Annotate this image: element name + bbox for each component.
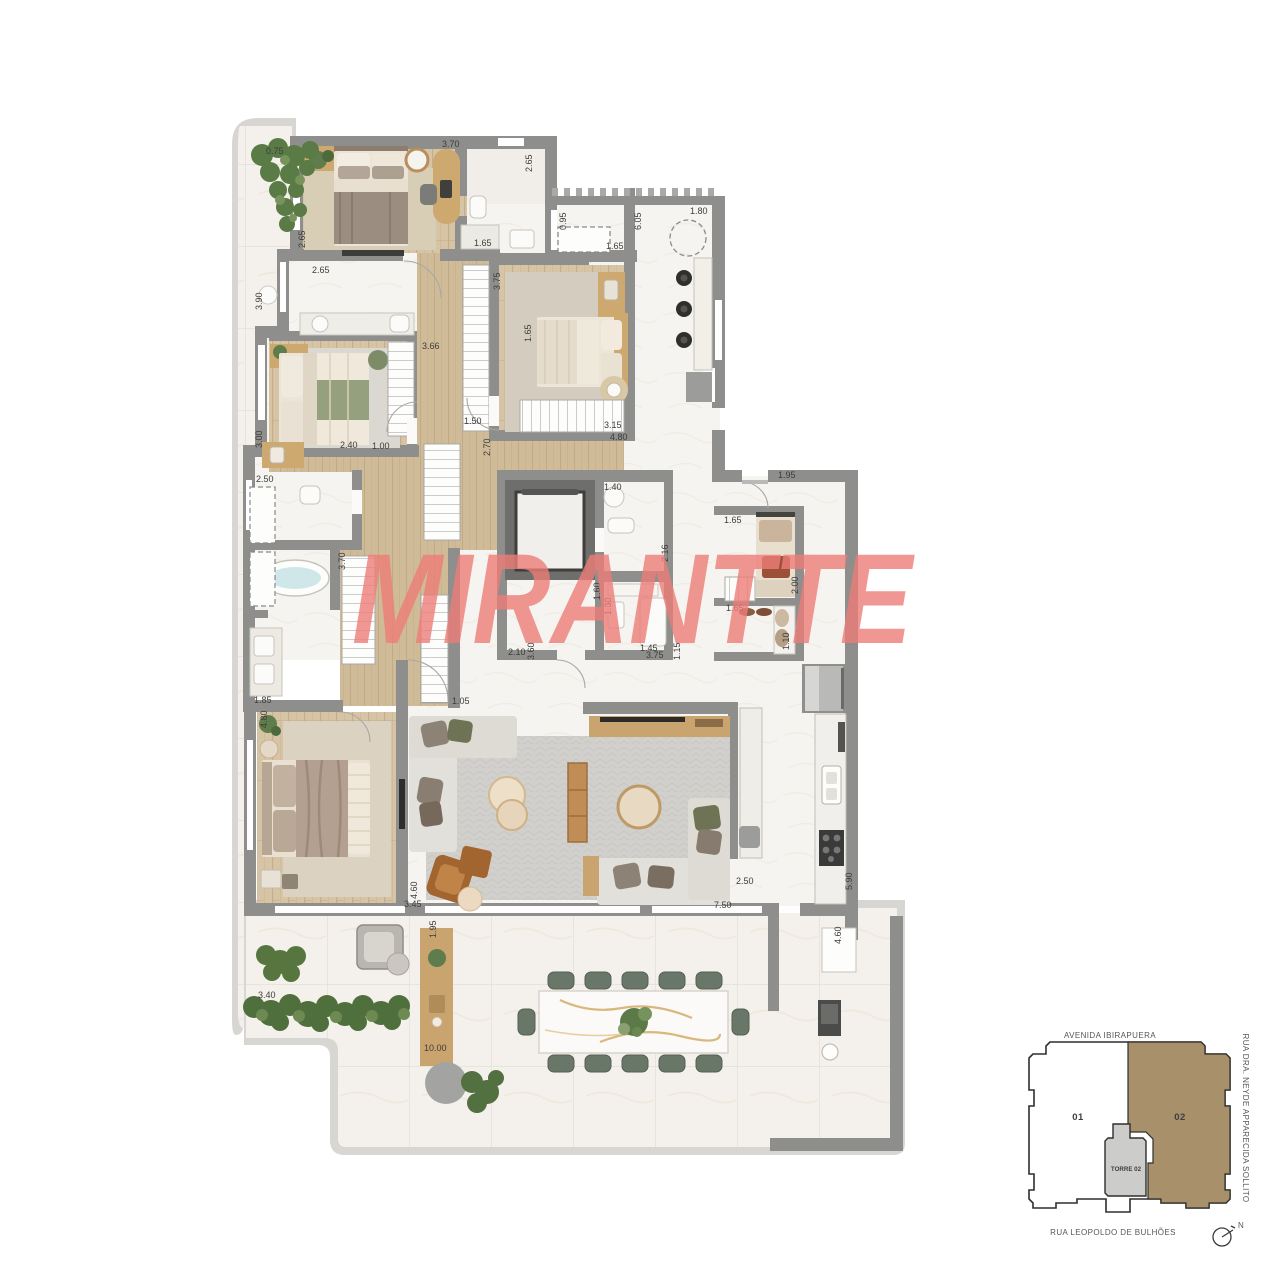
svg-text:1.65: 1.65 xyxy=(474,238,492,248)
svg-text:RUA DRA. NEYDE APPARECIDA SOLL: RUA DRA. NEYDE APPARECIDA SOLLITO xyxy=(1241,1034,1250,1203)
svg-text:1.95: 1.95 xyxy=(778,470,796,480)
svg-text:2.65: 2.65 xyxy=(312,265,330,275)
svg-text:TORRE 02: TORRE 02 xyxy=(1111,1166,1142,1173)
svg-text:3.45: 3.45 xyxy=(404,899,422,909)
svg-text:5.90: 5.90 xyxy=(844,872,854,890)
svg-text:01: 01 xyxy=(1072,1112,1084,1123)
svg-text:4.60: 4.60 xyxy=(409,881,419,899)
svg-text:2.40: 2.40 xyxy=(340,440,358,450)
svg-text:N: N xyxy=(1238,1221,1244,1230)
svg-text:3.66: 3.66 xyxy=(422,341,440,351)
svg-text:10.00: 10.00 xyxy=(424,1043,447,1053)
svg-text:4.60: 4.60 xyxy=(833,926,843,944)
svg-text:2.50: 2.50 xyxy=(736,876,754,886)
svg-text:1.95: 1.95 xyxy=(428,920,438,938)
svg-text:1.65: 1.65 xyxy=(523,324,533,342)
svg-text:1.00: 1.00 xyxy=(372,441,390,451)
svg-text:3.75: 3.75 xyxy=(492,272,502,290)
svg-text:3.40: 3.40 xyxy=(258,990,276,1000)
svg-text:1.80: 1.80 xyxy=(690,206,708,216)
svg-text:3.15: 3.15 xyxy=(604,420,622,430)
svg-text:0.75: 0.75 xyxy=(266,146,284,156)
svg-text:3.70: 3.70 xyxy=(442,139,460,149)
svg-text:1.05: 1.05 xyxy=(452,696,470,706)
svg-text:MIRANTTE: MIRANTTE xyxy=(352,528,915,671)
svg-text:6.05: 6.05 xyxy=(633,212,643,230)
svg-text:1.65: 1.65 xyxy=(724,515,742,525)
svg-text:1.40: 1.40 xyxy=(604,482,622,492)
svg-text:3.00: 3.00 xyxy=(254,430,264,448)
svg-text:AVENIDA IBIRAPUERA: AVENIDA IBIRAPUERA xyxy=(1064,1031,1156,1040)
svg-text:2.50: 2.50 xyxy=(256,474,274,484)
svg-text:4.80: 4.80 xyxy=(610,432,628,442)
svg-text:2.65: 2.65 xyxy=(297,230,307,248)
svg-text:1.65: 1.65 xyxy=(606,241,624,251)
svg-text:1.50: 1.50 xyxy=(464,416,482,426)
svg-text:4.80: 4.80 xyxy=(259,710,269,728)
svg-text:3.70: 3.70 xyxy=(337,552,347,570)
svg-text:02: 02 xyxy=(1174,1112,1186,1123)
svg-text:7.50: 7.50 xyxy=(714,900,732,910)
svg-text:RUA LEOPOLDO DE BULHÕES: RUA LEOPOLDO DE BULHÕES xyxy=(1050,1228,1176,1237)
svg-text:2.65: 2.65 xyxy=(524,154,534,172)
svg-text:3.90: 3.90 xyxy=(254,292,264,310)
svg-text:0.95: 0.95 xyxy=(558,212,568,230)
svg-text:1.85: 1.85 xyxy=(254,695,272,705)
svg-text:2.70: 2.70 xyxy=(482,438,492,456)
